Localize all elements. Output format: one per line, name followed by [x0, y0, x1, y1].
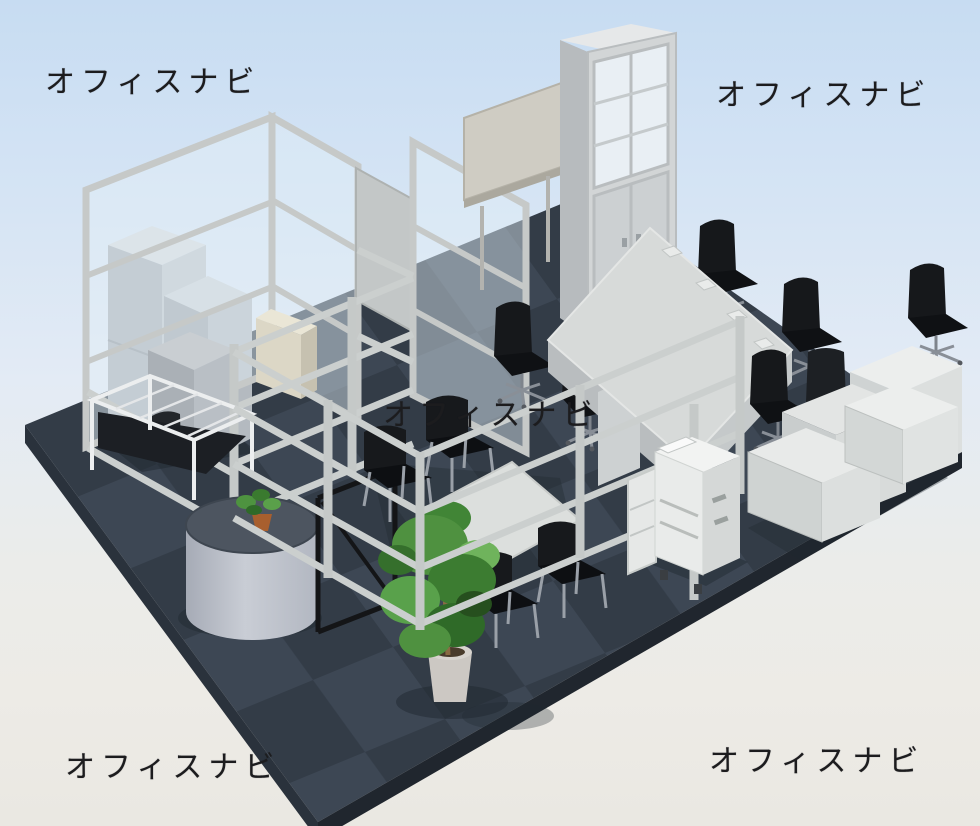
watermark-bottom-right: オフィスナビ — [709, 736, 924, 780]
watermark-bottom-left: オフィスナビ — [65, 742, 280, 786]
round-reception-counter — [186, 489, 318, 640]
watermark-top-right: オフィスナビ — [716, 70, 931, 114]
watermark-top-left: オフィスナビ — [45, 57, 260, 101]
watermark-center: オフィスナビ — [383, 390, 598, 434]
office-layout-preview: オフィスナビ オフィスナビ オフィスナビ オフィスナビ オフィスナビ — [0, 0, 980, 826]
